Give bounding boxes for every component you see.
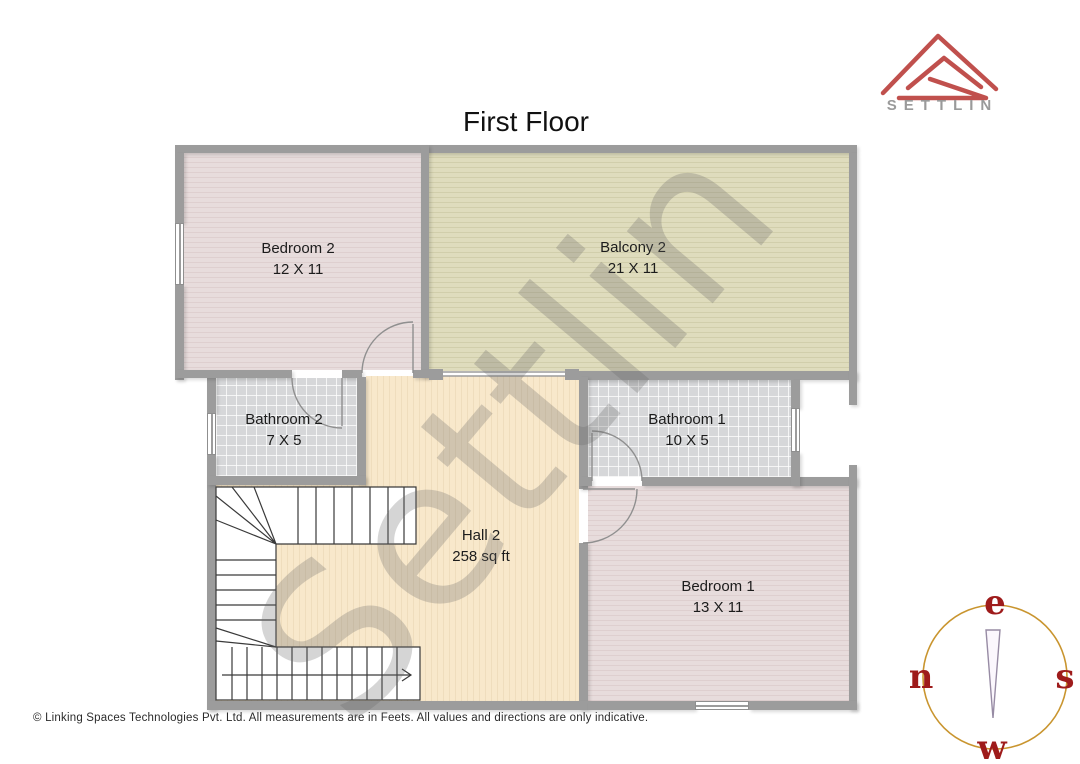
wall-bottom-right-a <box>588 701 695 710</box>
balcony2-dims: 21 X 11 <box>600 258 666 279</box>
wall-bottom-right-b <box>749 701 857 710</box>
copyright-note: © Linking Spaces Technologies Pvt. Ltd. … <box>33 712 648 724</box>
wall-balcony-bottom <box>579 371 857 380</box>
wall-bathroom1-bottom-a <box>579 477 592 486</box>
bathroom1-label: Bathroom 1 10 X 5 <box>648 409 726 451</box>
wall-left-lower-b <box>207 455 216 710</box>
brand-name: SETTLIN <box>880 97 1005 114</box>
wall-bedroom2-bottom-a <box>175 370 292 378</box>
wall-stub-balcony-opening-right <box>565 369 579 380</box>
bathroom2-window <box>207 413 216 455</box>
compass-west: w <box>976 728 1007 763</box>
wall-bathroom1-right-a <box>791 380 800 408</box>
bedroom1-label: Bedroom 1 13 X 11 <box>681 576 754 618</box>
compass-icon: e n s w <box>910 585 1080 763</box>
bedroom2-window <box>175 223 184 285</box>
page-title: First Floor <box>376 106 676 138</box>
bathroom1-window <box>791 408 800 452</box>
floor-plan-page: First Floor <box>0 0 1080 764</box>
wall-bottom-left <box>207 701 588 710</box>
wall-right-a <box>849 153 857 405</box>
compass-north: n <box>910 657 933 697</box>
hall2-dims: 258 sq ft <box>452 546 510 567</box>
hall2-floor-left <box>216 485 366 701</box>
bedroom2-name: Bedroom 2 <box>261 238 334 259</box>
compass-east: e <box>984 585 1006 623</box>
bathroom1-dims: 10 X 5 <box>648 430 726 451</box>
wall-bathroom2-bottom <box>207 476 366 485</box>
wall-stub-balcony-opening-left <box>429 369 443 380</box>
wall-left-upper-b <box>175 285 184 380</box>
wall-bathroom2-right <box>357 377 366 485</box>
wall-hall-divider-b <box>579 543 588 710</box>
wall-bathroom1-right-b <box>791 452 800 486</box>
hall2-name: Hall 2 <box>452 525 510 546</box>
wall-left-upper-a <box>175 153 184 223</box>
bathroom2-label: Bathroom 2 7 X 5 <box>245 409 323 451</box>
compass-needle <box>986 630 1000 718</box>
wall-top <box>175 145 857 153</box>
balcony2-name: Balcony 2 <box>600 237 666 258</box>
wall-bathroom1-bottom-b <box>642 477 857 486</box>
wall-divider-bedroom2-balcony <box>421 145 429 377</box>
bedroom1-name: Bedroom 1 <box>681 576 754 597</box>
bedroom2-label: Bedroom 2 12 X 11 <box>261 238 334 280</box>
balcony2-label: Balcony 2 21 X 11 <box>600 237 666 279</box>
compass-south: s <box>1055 657 1074 697</box>
bathroom1-name: Bathroom 1 <box>648 409 726 430</box>
bathroom2-name: Bathroom 2 <box>245 409 323 430</box>
bedroom2-dims: 12 X 11 <box>261 259 334 280</box>
wall-left-lower-a <box>207 377 216 413</box>
bedroom1-window <box>695 701 749 710</box>
wall-hall-divider-a <box>579 377 588 489</box>
bedroom1-dims: 13 X 11 <box>681 597 754 618</box>
bathroom2-dims: 7 X 5 <box>245 430 323 451</box>
hall2-label: Hall 2 258 sq ft <box>452 525 510 567</box>
wall-bedroom2-bottom-c <box>413 370 429 378</box>
wall-right-b <box>849 465 857 710</box>
